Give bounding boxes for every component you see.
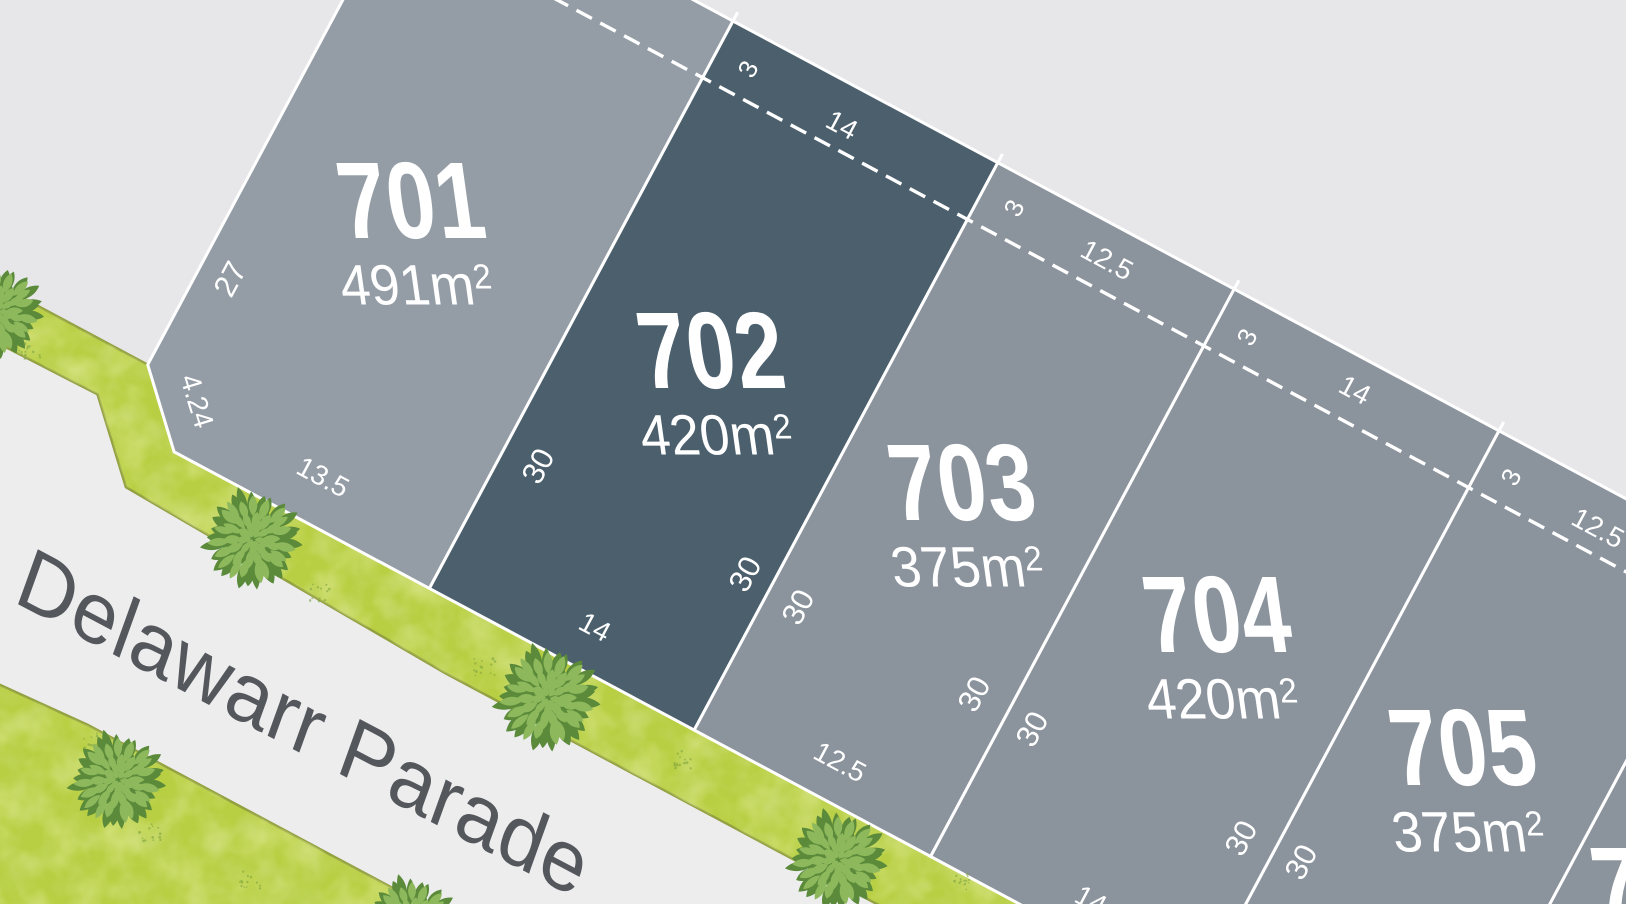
svg-text:704: 704	[1135, 554, 1298, 676]
svg-text:705: 705	[1381, 687, 1544, 809]
svg-text:375m2: 375m2	[1388, 800, 1549, 864]
svg-text:702: 702	[629, 290, 792, 412]
svg-text:375m2: 375m2	[887, 535, 1048, 599]
svg-text:420m2: 420m2	[1142, 667, 1303, 731]
svg-text:703: 703	[880, 422, 1043, 544]
svg-text:491m2: 491m2	[336, 253, 497, 317]
svg-text:701: 701	[329, 140, 492, 262]
svg-text:420m2: 420m2	[636, 403, 797, 467]
